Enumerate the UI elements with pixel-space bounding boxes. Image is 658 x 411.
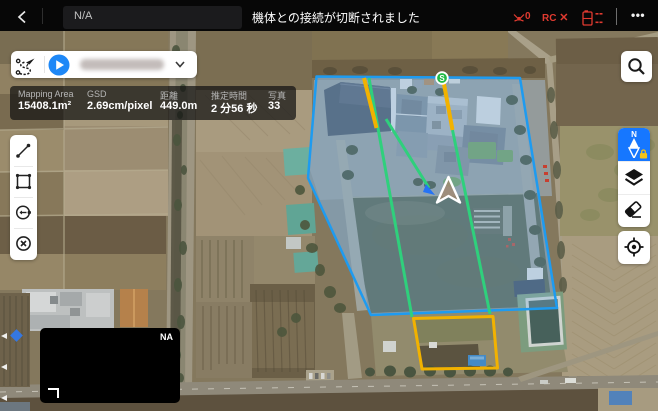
svg-text:S: S [439, 74, 445, 83]
